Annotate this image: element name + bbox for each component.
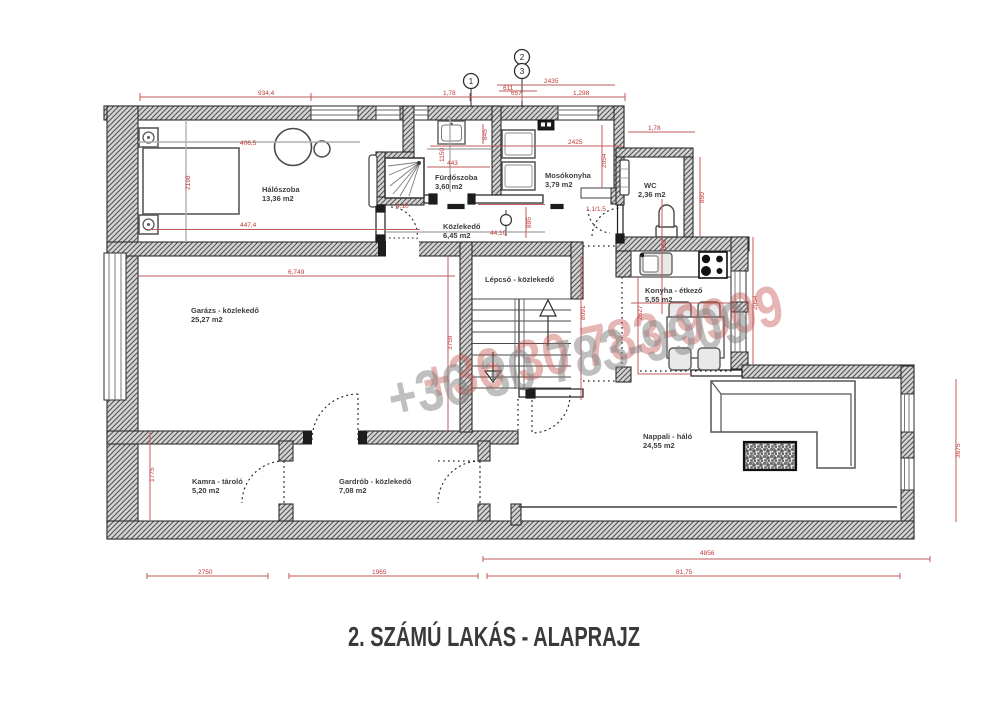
- svg-text:2435: 2435: [544, 78, 559, 85]
- svg-text:Lépcső - közlekedő: Lépcső - közlekedő: [485, 275, 555, 284]
- svg-text:6,45 m2: 6,45 m2: [443, 231, 471, 240]
- svg-text:6,749: 6,749: [288, 269, 305, 276]
- svg-text:2. SZÁMÚ LAKÁS - ALAPRAJZ: 2. SZÁMÚ LAKÁS - ALAPRAJZ: [348, 621, 640, 652]
- svg-text:Garázs - közlekedő: Garázs - közlekedő: [191, 306, 259, 315]
- svg-text:1,298: 1,298: [573, 90, 590, 97]
- svg-text:934,4: 934,4: [258, 90, 275, 97]
- svg-text:845: 845: [482, 129, 489, 140]
- svg-text:5,20 m2: 5,20 m2: [192, 486, 220, 495]
- svg-text:7,08 m2: 7,08 m2: [339, 486, 367, 495]
- svg-text:3675: 3675: [955, 443, 962, 458]
- svg-text:Nappali - háló: Nappali - háló: [643, 432, 693, 441]
- svg-text:2,36 m2: 2,36 m2: [638, 190, 666, 199]
- svg-text:1775: 1775: [149, 467, 156, 482]
- svg-text:24,55 m2: 24,55 m2: [643, 441, 675, 450]
- svg-text:Közlekedő: Közlekedő: [443, 222, 481, 231]
- svg-text:Fürdőszoba: Fürdőszoba: [435, 173, 478, 182]
- svg-text:81,75: 81,75: [676, 569, 693, 576]
- svg-text:2: 2: [520, 53, 525, 62]
- svg-text:1,1/1,5: 1,1/1,5: [586, 206, 606, 213]
- svg-text:611: 611: [503, 85, 514, 92]
- svg-text:44,10: 44,10: [490, 230, 507, 237]
- svg-text:WC: WC: [644, 181, 657, 190]
- svg-text:895: 895: [526, 217, 533, 228]
- svg-text:2750: 2750: [198, 569, 213, 576]
- svg-text:447,4: 447,4: [240, 222, 257, 229]
- svg-text:Kamra - tároló: Kamra - tároló: [192, 477, 243, 486]
- svg-text:1: 1: [469, 77, 474, 86]
- svg-text:1,78: 1,78: [648, 125, 661, 132]
- svg-text:Gardrób - közlekedő: Gardrób - közlekedő: [339, 477, 412, 486]
- svg-text:1150: 1150: [439, 148, 446, 162]
- svg-text:4,10: 4,10: [396, 203, 409, 210]
- svg-text:4856: 4856: [700, 550, 715, 557]
- svg-text:3,79 m2: 3,79 m2: [545, 180, 573, 189]
- svg-text:3,60 m2: 3,60 m2: [435, 182, 463, 191]
- svg-text:3: 3: [520, 67, 525, 76]
- svg-text:25,27 m2: 25,27 m2: [191, 315, 223, 324]
- svg-text:2198: 2198: [185, 175, 192, 190]
- svg-text:2425: 2425: [568, 139, 583, 146]
- svg-text:2054: 2054: [601, 153, 608, 168]
- svg-text:1,78: 1,78: [443, 90, 456, 97]
- svg-text:Hálószoba: Hálószoba: [262, 185, 300, 194]
- svg-text:Mosókonyha: Mosókonyha: [545, 171, 592, 180]
- svg-text:443: 443: [447, 160, 458, 167]
- svg-text:850: 850: [699, 192, 706, 203]
- svg-text:13,36 m2: 13,36 m2: [262, 194, 294, 203]
- svg-text:658: 658: [661, 239, 668, 250]
- svg-text:1965: 1965: [372, 569, 387, 576]
- svg-text:406,5: 406,5: [240, 140, 257, 147]
